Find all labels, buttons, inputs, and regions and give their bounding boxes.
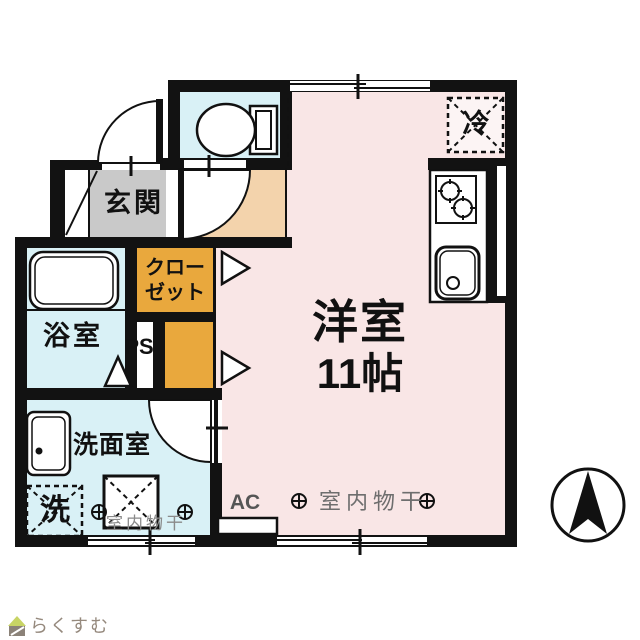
- entrance-door-arc: [98, 99, 163, 176]
- wall-genkan-top: [50, 160, 102, 170]
- wall-toilet-left: [168, 80, 180, 170]
- main-room-label: 洋室: [303, 296, 417, 350]
- wall-washroom-top: [15, 388, 222, 400]
- wall-closet-bottom: [137, 312, 213, 322]
- wall-washroom-door-jamb: [210, 388, 222, 400]
- main-room-size: 11帖: [300, 349, 420, 399]
- compass-icon: [552, 469, 624, 541]
- hallway-floor: [184, 168, 285, 240]
- logo-house-icon: [8, 616, 26, 636]
- wall-toilet-right: [280, 80, 292, 170]
- hallway-main-boundary: [285, 168, 287, 240]
- toilet-room-floor: [180, 92, 280, 158]
- indoor-drying-washroom-label: 室内物干: [98, 513, 194, 535]
- wall-kitchen-bottom-stub: [487, 293, 517, 303]
- wall-toilet-bottom: [168, 158, 292, 170]
- wall-bottom: [15, 535, 517, 547]
- wall-top: [280, 80, 517, 92]
- genkan-label: 玄関: [96, 184, 172, 224]
- closet-label: クロー ゼット: [139, 251, 211, 311]
- wall-genkan-hinge: [160, 158, 180, 170]
- wall-mid-horizontal: [15, 237, 292, 248]
- wall-bathroom-right: [125, 248, 137, 400]
- wall-right: [505, 80, 517, 547]
- indoor-drying-main-label: 室内物干: [310, 489, 436, 515]
- wall-kitchen-top: [428, 158, 517, 170]
- floor-plan-canvas: 玄関 浴室 クロー ゼット PS 洗面室 洗 冷 洋室 11帖 AC 室内物干 …: [0, 0, 640, 640]
- ac-label: AC: [219, 491, 271, 515]
- genkan-left-line: [88, 170, 90, 237]
- wall-porch-left: [50, 160, 65, 240]
- ps-label: PS: [115, 331, 163, 363]
- wall-kitchen-back: [487, 163, 497, 303]
- fridge-label: 冷: [458, 106, 494, 144]
- bathroom-label: 浴室: [32, 318, 114, 356]
- logo-text: らくすむ: [30, 615, 132, 637]
- closet-front-line: [213, 248, 216, 388]
- washer-label: 洗: [37, 492, 73, 530]
- closet-lower-floor: [165, 322, 213, 388]
- washroom-label: 洗面室: [60, 431, 164, 461]
- wall-toilet-top: [168, 80, 292, 92]
- north-arrow-icon: [569, 471, 607, 534]
